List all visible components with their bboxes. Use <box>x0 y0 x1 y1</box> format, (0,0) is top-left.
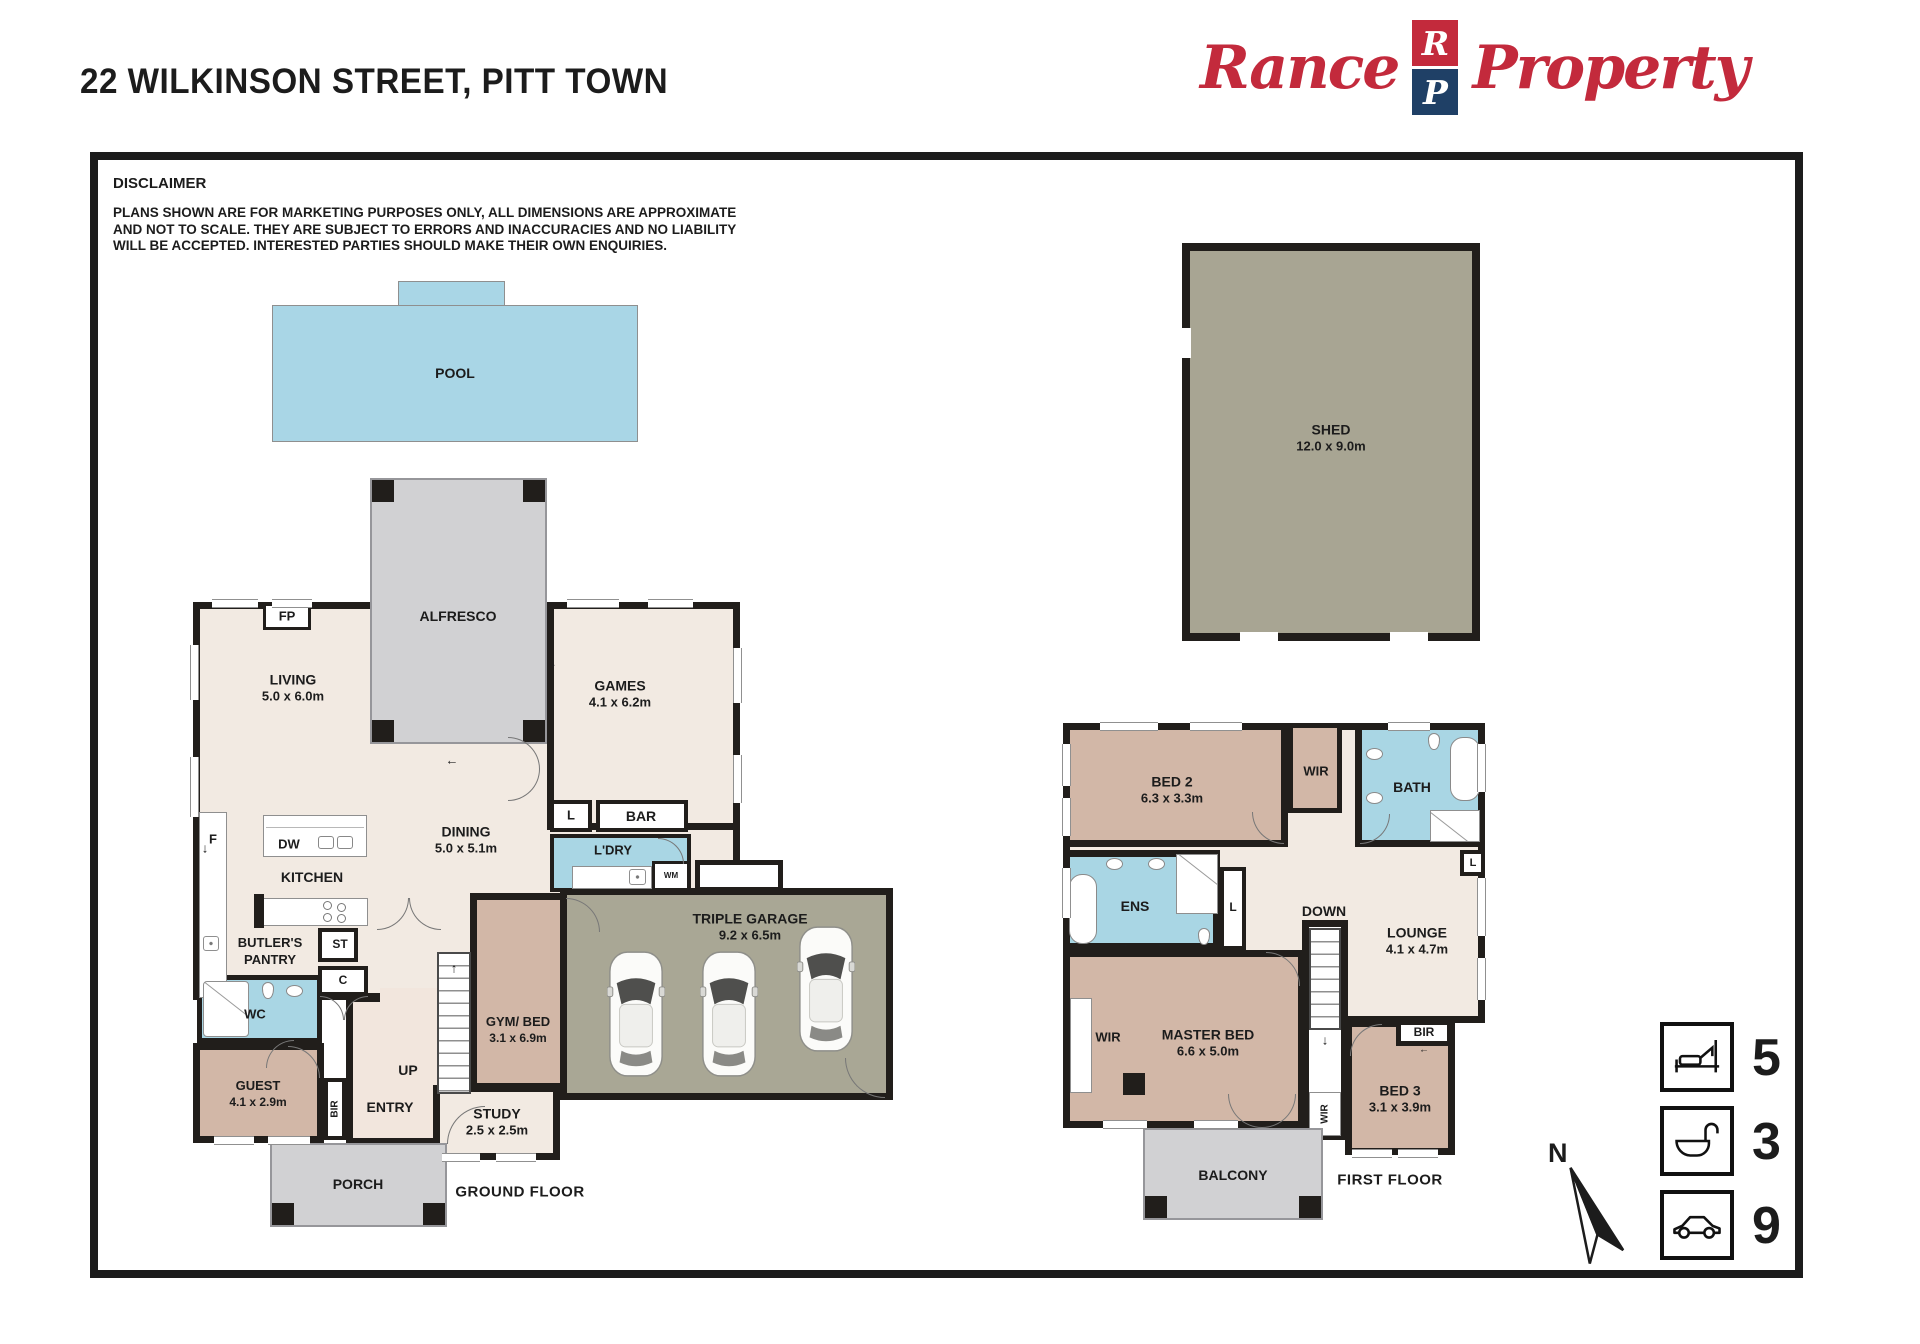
balcony-post <box>1145 1196 1167 1218</box>
alfresco-post <box>372 720 394 742</box>
linen-label: L <box>1470 856 1477 870</box>
slider-arrow-icon: → <box>1119 940 1129 951</box>
bathtub-icon <box>1069 874 1097 944</box>
window <box>1103 1120 1147 1129</box>
linen-label: L <box>567 808 575 825</box>
basin-icon <box>286 985 303 997</box>
wall-stub <box>1123 1073 1145 1095</box>
window <box>1398 1149 1438 1158</box>
basin-icon <box>1106 858 1123 870</box>
lounge-dim: 4.1 x 4.7m <box>1386 942 1448 959</box>
floorplan-page: 22 WILKINSON STREET, PITT TOWN Rance R P… <box>0 0 1920 1344</box>
alfresco-label: ALFRESCO <box>420 607 497 625</box>
window <box>268 1136 310 1145</box>
garage-dim: 9.2 x 6.5m <box>692 928 807 945</box>
disclaimer-heading: DISCLAIMER <box>113 175 206 192</box>
shed-label: SHED <box>1296 420 1365 438</box>
kitchen-sink-icon <box>318 836 334 849</box>
cooktop-bench <box>262 898 368 926</box>
island-line <box>266 827 364 828</box>
study-label: STUDY <box>466 1104 528 1122</box>
fridge-label: F <box>209 832 217 849</box>
window <box>1477 958 1486 1000</box>
shower-icon <box>203 981 249 1037</box>
porch-post <box>272 1203 294 1225</box>
bath-icon <box>1671 1118 1723 1164</box>
north-label: N <box>1548 1138 1568 1169</box>
kitchen-label: KITCHEN <box>281 868 343 886</box>
butlers-pantry-label: BUTLER'S <box>238 935 302 952</box>
bed-count: 5 <box>1752 1028 1781 1088</box>
slider-arrow-icon: ↓ <box>550 655 557 670</box>
window <box>733 755 742 803</box>
alfresco-post <box>523 480 545 502</box>
window <box>1352 1149 1392 1158</box>
cooktop-burner-icon <box>337 903 346 912</box>
guest-dim: 4.1 x 2.9m <box>229 1095 286 1111</box>
shed-door-gap <box>1390 632 1428 642</box>
bed2-label: BED 2 <box>1141 772 1203 790</box>
slider-arrow-icon: ← <box>446 753 459 768</box>
gym-dim: 3.1 x 6.9m <box>486 1031 550 1047</box>
dining-dim: 5.0 x 5.1m <box>435 841 497 858</box>
brand-mark-r: R <box>1412 20 1458 66</box>
kitchen-sink-icon <box>337 836 353 849</box>
cooktop-burner-icon <box>323 901 332 910</box>
entry-label: ENTRY <box>367 1098 414 1116</box>
shower-line <box>1176 854 1218 888</box>
window <box>1477 744 1486 792</box>
car-icon <box>607 950 665 1078</box>
slider-arrow-icon: ← <box>1157 940 1167 951</box>
stairs-up-arrow-icon: ↑ <box>451 961 458 976</box>
bath-count: 3 <box>1752 1112 1781 1172</box>
games-label: GAMES <box>589 676 651 694</box>
legend-bed-box <box>1660 1022 1734 1092</box>
fireplace-label: FP <box>279 609 296 626</box>
window <box>190 757 199 817</box>
shower-line <box>1430 810 1480 842</box>
window <box>272 599 312 608</box>
balcony-label: BALCONY <box>1198 1166 1267 1184</box>
shed-door-gap <box>1240 632 1278 642</box>
basin-icon <box>1366 748 1383 760</box>
first-floor-label: FIRST FLOOR <box>1337 1170 1443 1190</box>
disclaimer-body: PLANS SHOWN ARE FOR MARKETING PURPOSES O… <box>113 205 753 255</box>
pool-step <box>398 281 505 308</box>
bir-label: BIR <box>330 1100 341 1117</box>
porch-label: PORCH <box>333 1175 384 1193</box>
cooktop-burner-icon <box>337 914 346 923</box>
window <box>496 1153 536 1162</box>
butlers-pantry-label2: PANTRY <box>238 952 302 969</box>
master-dim: 6.6 x 5.0m <box>1162 1044 1255 1061</box>
wm-label: WM <box>664 871 678 881</box>
living-dim: 5.0 x 6.0m <box>262 689 324 706</box>
laundry-tub-icon <box>629 869 646 885</box>
window <box>733 648 742 703</box>
pool-label: POOL <box>435 364 475 382</box>
cooktop-burner-icon <box>323 913 332 922</box>
basin-icon <box>1366 792 1383 804</box>
window <box>648 599 693 608</box>
shed-dim: 12.0 x 9.0m <box>1296 439 1365 456</box>
alfresco-post <box>372 480 394 502</box>
bed2-dim: 6.3 x 3.3m <box>1141 791 1203 808</box>
alfresco-post <box>523 720 545 742</box>
window <box>190 645 199 700</box>
bed-icon <box>1671 1034 1723 1080</box>
window <box>567 599 619 608</box>
st-label: ST <box>332 937 347 953</box>
shower-icon <box>1176 854 1218 914</box>
balcony-post <box>1299 1196 1321 1218</box>
window <box>1062 798 1071 836</box>
car-count: 9 <box>1752 1196 1781 1256</box>
master-label: MASTER BED <box>1162 1025 1255 1043</box>
bar-label: BAR <box>626 807 656 825</box>
car-side-icon <box>1671 1205 1723 1245</box>
shower-line <box>203 981 249 1019</box>
porch-post <box>423 1203 445 1225</box>
car-icon <box>700 950 758 1078</box>
lounge-label: LOUNGE <box>1386 923 1448 941</box>
master-wir-strip <box>1070 998 1092 1093</box>
window <box>1194 1120 1238 1129</box>
c-label: C <box>339 973 348 989</box>
living-label: LIVING <box>262 670 324 688</box>
window <box>1388 722 1430 731</box>
ground-floor-label: GROUND FLOOR <box>455 1182 584 1202</box>
up-label: UP <box>398 1061 417 1079</box>
room-games <box>547 602 740 830</box>
brand-word-property: Property <box>1472 38 1747 98</box>
garage-nook <box>695 860 783 892</box>
wir-label: WIR <box>1095 1030 1120 1047</box>
basin-icon <box>1148 858 1165 870</box>
window <box>442 1153 480 1162</box>
legend-car-box <box>1660 1190 1734 1260</box>
bed3-label: BED 3 <box>1369 1081 1431 1099</box>
wall-stub <box>254 894 264 928</box>
brand-logo-mark-icon: R P <box>1412 20 1458 115</box>
down-label: DOWN <box>1302 902 1346 920</box>
window <box>212 599 258 608</box>
linen-label: L <box>1229 900 1236 916</box>
window <box>1062 744 1071 786</box>
shed-door-gap <box>1181 328 1191 358</box>
guest-label: GUEST <box>229 1078 286 1095</box>
page-title: 22 WILKINSON STREET, PITT TOWN <box>80 62 668 102</box>
window <box>1477 878 1486 936</box>
garage-label: TRIPLE GARAGE <box>692 909 807 927</box>
room-gym-bed <box>470 893 567 1090</box>
wir-label: WIR <box>1320 1104 1331 1123</box>
wc-label: WC <box>244 1007 266 1024</box>
stairs-down <box>1309 928 1341 1030</box>
gym-label: GYM/ BED <box>486 1014 550 1031</box>
window <box>1100 722 1158 731</box>
bir-label: BIR <box>1414 1025 1435 1041</box>
brand-mark-p: P <box>1412 69 1458 115</box>
wir-label: WIR <box>1303 764 1328 781</box>
bath-label: BATH <box>1393 778 1431 796</box>
bathtub-icon <box>1450 737 1480 801</box>
legend-bath-box <box>1660 1106 1734 1176</box>
study-dim: 2.5 x 2.5m <box>466 1123 528 1140</box>
shower-icon <box>1430 810 1480 842</box>
slider-arrow-icon: ↓ <box>202 841 209 856</box>
window <box>1190 722 1242 731</box>
window <box>1062 868 1071 918</box>
pantry-sink-icon <box>203 936 219 951</box>
window <box>214 1136 254 1145</box>
brand-word-rance: Rance <box>1200 38 1398 98</box>
dining-label: DINING <box>435 822 497 840</box>
laundry-label: L'DRY <box>594 843 632 860</box>
bed3-dim: 3.1 x 3.9m <box>1369 1100 1431 1117</box>
games-dim: 4.1 x 6.2m <box>589 695 651 712</box>
slider-arrow-icon: ← <box>1419 1045 1429 1056</box>
brand-logo: Rance R P Property <box>1200 20 1748 115</box>
stairs-down-arrow-icon: ↓ <box>1322 1033 1329 1048</box>
ensuite-label: ENS <box>1121 897 1150 915</box>
north-arrow-icon <box>1540 1160 1640 1272</box>
dishwasher-label: DW <box>278 837 300 854</box>
